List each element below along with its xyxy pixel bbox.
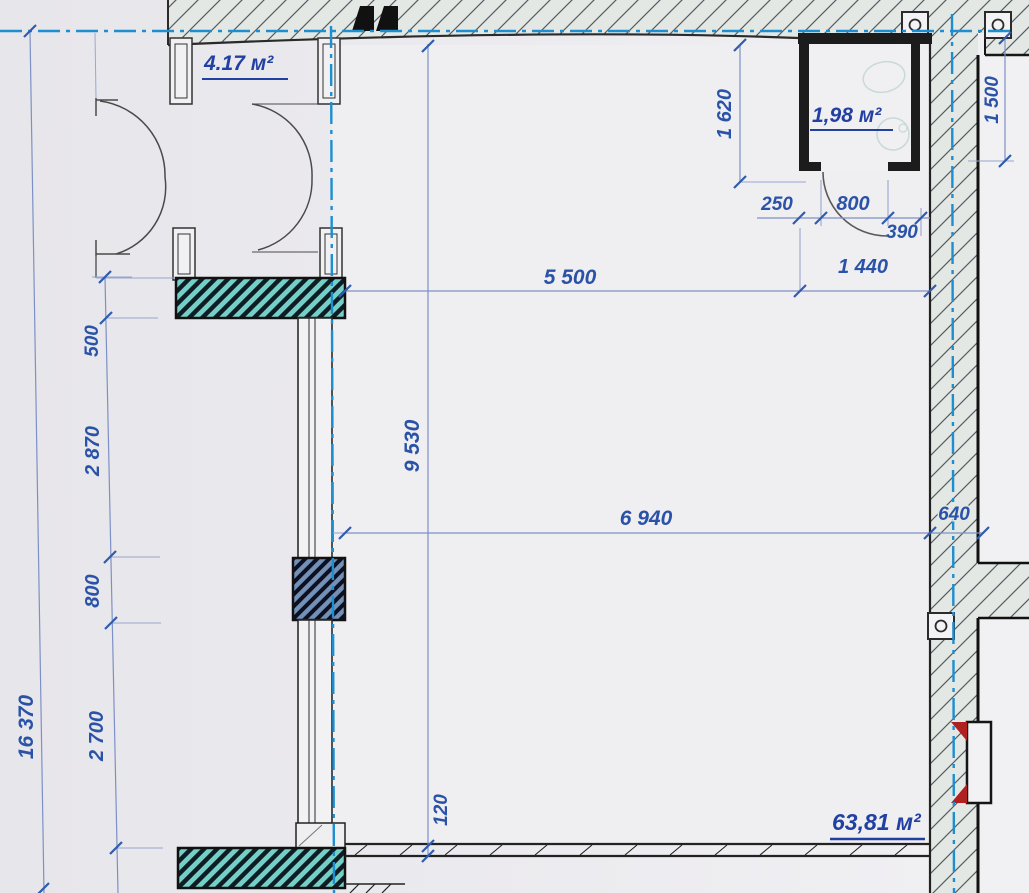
area-label-wc: 1,98 м² (812, 104, 882, 127)
dim-label-9530: 9 530 (401, 419, 424, 472)
dim-label-2700: 2 700 (86, 711, 108, 762)
pier-teal-bottom (178, 848, 345, 888)
dim-label-800-left: 800 (82, 574, 104, 607)
window-1 (298, 318, 332, 558)
dim-label-1440: 1 440 (838, 256, 888, 278)
pier-mid (293, 558, 345, 620)
dim-label-2870: 2 870 (82, 426, 104, 477)
dim-label-5500: 5 500 (544, 266, 597, 289)
dim-label-6940: 6 940 (620, 507, 673, 530)
right-branch-wall (978, 563, 1029, 618)
floor-plan-scan: 4.17 м² 1,98 м² 63,81 м² 5 500 1 440 1 6… (0, 0, 1029, 893)
dim-label-120: 120 (431, 794, 452, 826)
area-label-main: 63,81 м² (832, 809, 922, 835)
dim-label-1620: 1 620 (714, 89, 736, 139)
window-2 (298, 620, 332, 827)
dim-label-640: 640 (938, 504, 970, 525)
right-wall-band (930, 33, 1029, 893)
dim-label-500: 500 (82, 325, 103, 357)
dim-label-390: 390 (886, 222, 918, 243)
dim-label-250: 250 (760, 194, 793, 215)
dim-label-1500: 1 500 (982, 76, 1003, 124)
dim-label-16370: 16 370 (15, 695, 38, 760)
area-label-vestibule: 4.17 м² (203, 52, 274, 75)
column-marker-3 (928, 613, 954, 639)
pier-teal-top (176, 278, 345, 318)
shaft-niche (967, 722, 991, 803)
floor-plan: 4.17 м² 1,98 м² 63,81 м² 5 500 1 440 1 6… (0, 0, 1029, 893)
dim-label-800-top: 800 (836, 193, 869, 215)
column-marker-2 (985, 12, 1011, 38)
pier-bottom-white (296, 823, 345, 848)
